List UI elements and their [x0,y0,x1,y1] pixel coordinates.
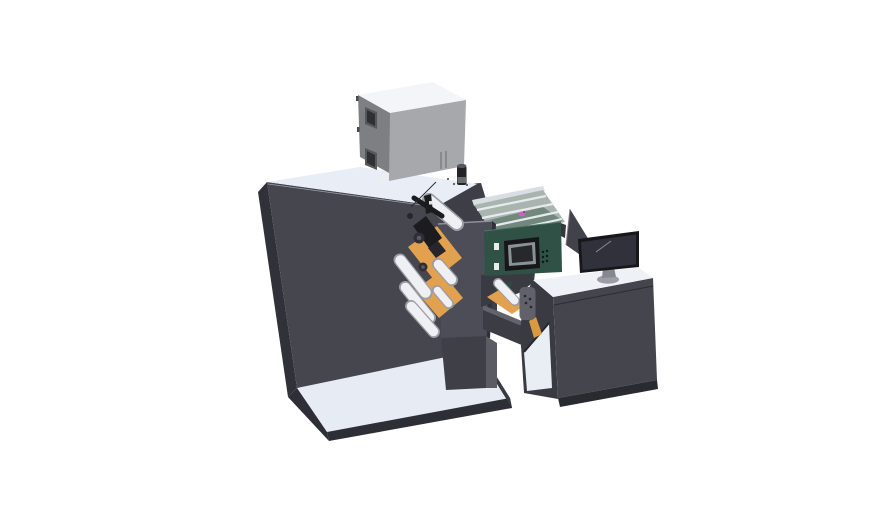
screw-dot [466,184,468,186]
hmi-button [546,260,548,262]
electrical-box [356,82,466,181]
tower-cylinder-cap [457,164,466,168]
tower-cylinder [457,164,467,185]
lower-module [441,336,497,390]
hmi-control-box [484,222,562,276]
operator-desk [520,267,658,407]
hmi-button [542,261,544,263]
head-knob-upper-core [417,236,422,241]
desk-front-face [553,278,657,398]
bracket-dot [530,306,533,309]
sensor-bracket [520,287,536,320]
bracket-dot [529,298,532,301]
lower-module-side [486,336,497,388]
hmi-button [542,251,544,253]
tower-cylinder-band [458,177,467,183]
bracket-dot [525,302,528,305]
head-pin [407,213,413,219]
hmi-button [542,256,544,258]
hmi-button [546,250,548,252]
screw-dot [447,178,449,180]
hinge [357,127,360,132]
head-knob-lower-core [421,265,425,269]
hmi-mount [494,243,499,250]
head-sensor-chip [429,201,433,205]
hinge [356,96,359,101]
lower-module-front [441,336,486,390]
hmi-screen [511,245,533,263]
machine-render-canvas [0,0,888,522]
name-plate [381,176,386,181]
sensor-bracket-body [520,287,536,320]
hmi-mount [494,263,499,270]
print-carriage-dot [523,211,525,213]
bracket-dot [524,295,527,298]
hmi-button [546,255,548,257]
screw-dot [453,183,455,185]
